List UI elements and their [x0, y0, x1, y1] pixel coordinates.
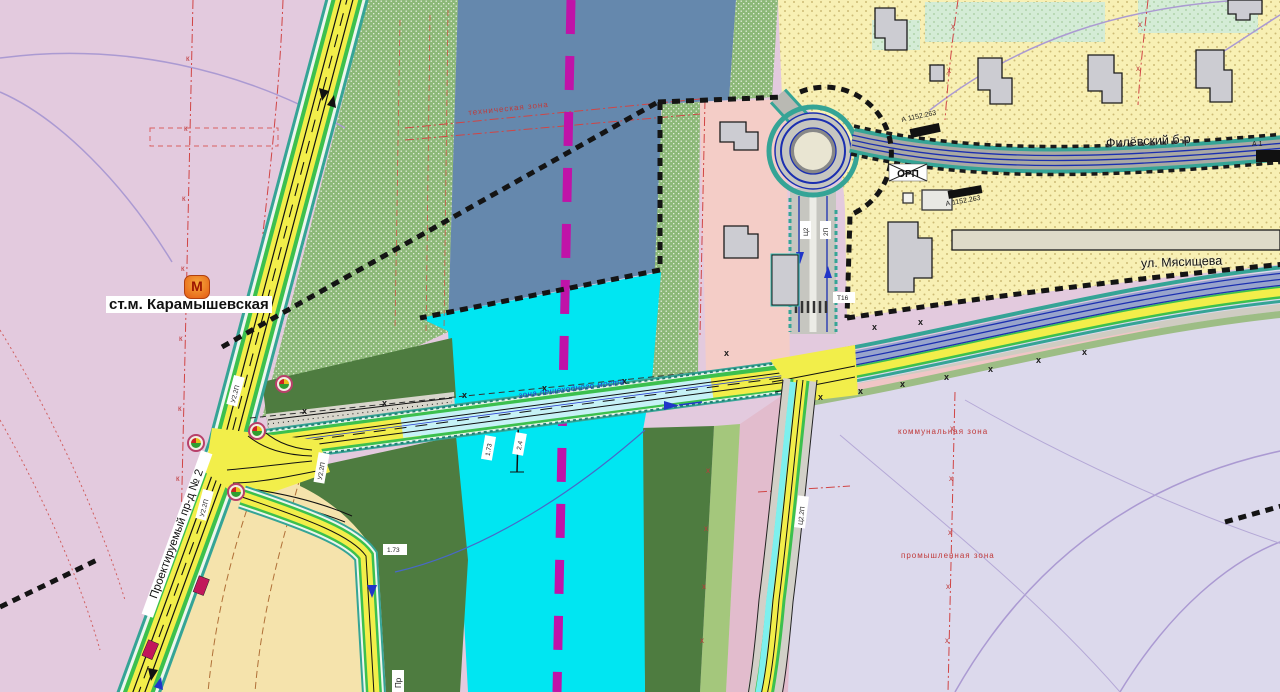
svg-text:ОРП: ОРП — [897, 169, 919, 180]
svg-text:х: х — [724, 348, 729, 358]
metro-icon: М — [184, 275, 210, 299]
svg-text:х: х — [1138, 20, 1142, 29]
street-label-myasishcheva: ул. Мясищева — [1141, 254, 1223, 271]
svg-text:1.73: 1.73 — [387, 547, 400, 554]
svg-text:х: х — [945, 636, 949, 645]
svg-text:х: х — [700, 636, 704, 645]
svg-text:х: х — [706, 466, 710, 475]
svg-text:х: х — [988, 364, 993, 374]
svg-text:х: х — [302, 406, 307, 416]
svg-text:х: х — [702, 582, 706, 591]
svg-text:х: х — [951, 22, 955, 31]
zone-label-communal: коммунальная зона — [898, 427, 988, 436]
svg-text:х: х — [1082, 347, 1087, 357]
svg-text:х: х — [858, 386, 863, 396]
traffic-light-icon — [249, 423, 265, 439]
svg-text:к: к — [176, 474, 180, 483]
svg-text:к: к — [182, 194, 186, 203]
svg-text:Ц2: Ц2 — [803, 227, 810, 236]
svg-text:х: х — [944, 372, 949, 382]
traffic-light-icon — [188, 435, 204, 451]
svg-text:к: к — [181, 264, 185, 273]
zone-label-industrial: промышленная зона — [901, 551, 995, 560]
traffic-light-icon — [228, 484, 244, 500]
map-graphics: хх хх х хх хх хх х хх х хх хх хх хх х хх… — [0, 0, 1280, 692]
svg-text:к: к — [186, 54, 190, 63]
svg-text:х: х — [949, 474, 953, 483]
svg-text:х: х — [1036, 355, 1041, 365]
planning-map-canvas[interactable]: хх хх х хх хх хх х хх х хх хх хх хх х хх… — [0, 0, 1280, 692]
svg-text:Пр: Пр — [394, 677, 403, 688]
svg-text:х: х — [382, 398, 387, 408]
svg-text:х: х — [872, 322, 877, 332]
svg-text:к: к — [178, 404, 182, 413]
traffic-light-icon — [276, 376, 292, 392]
svg-text:х: х — [947, 66, 951, 75]
axis-label: А 1 — [1252, 141, 1263, 148]
orp-marker: ОРП — [889, 164, 927, 181]
svg-text:х: х — [462, 390, 467, 400]
svg-text:х: х — [900, 379, 905, 389]
svg-text:2П: 2П — [823, 227, 830, 236]
svg-text:к: к — [184, 124, 188, 133]
svg-text:х: х — [704, 524, 708, 533]
svg-text:х: х — [818, 392, 823, 402]
svg-text:к: к — [179, 334, 183, 343]
svg-text:Т16: Т16 — [837, 295, 849, 302]
svg-text:х: х — [948, 528, 952, 537]
svg-text:х: х — [1136, 64, 1140, 73]
svg-text:х: х — [918, 317, 923, 327]
svg-text:х: х — [946, 582, 950, 591]
